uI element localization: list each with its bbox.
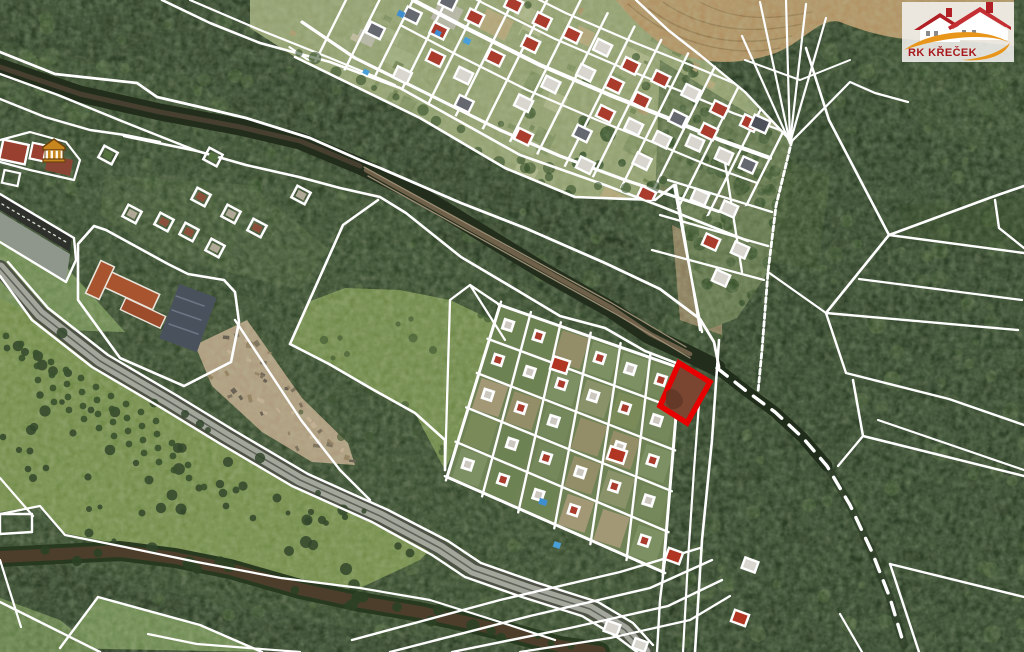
svg-text:RK KŘEČEK: RK KŘEČEK [908,46,977,59]
